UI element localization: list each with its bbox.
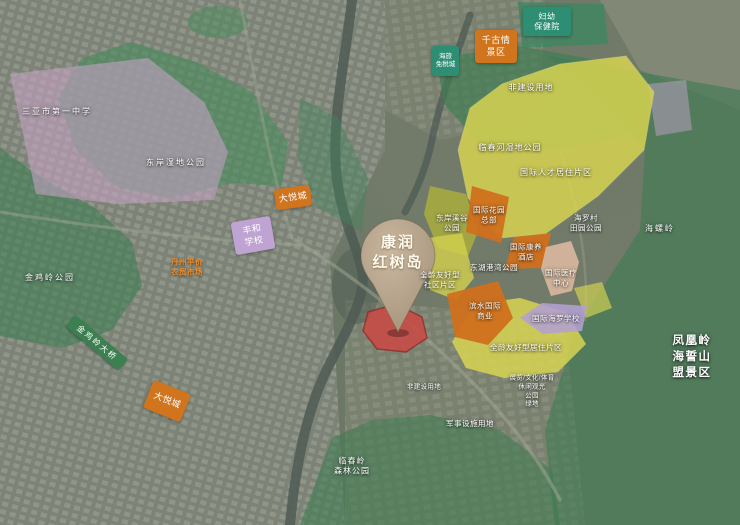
- label-box-hailv-dutyfree: 海旅 免税城: [432, 46, 459, 76]
- label-box-fuyou-hospital: 妇幼 保健院: [523, 7, 571, 36]
- stadium-green: [188, 6, 248, 38]
- zone-pink-medical: [541, 241, 579, 296]
- map-canvas: 三亚市第一中学 东岸湿地公园 金鸡岭公园 丹州平价 农贸市场 大悦城 丰和 学校…: [0, 0, 740, 525]
- label-box-fenghe-school: 丰和 学校: [230, 216, 275, 255]
- label-box-qianguqing: 千古情 景区: [475, 30, 517, 63]
- map-graphics-layer: [0, 0, 740, 525]
